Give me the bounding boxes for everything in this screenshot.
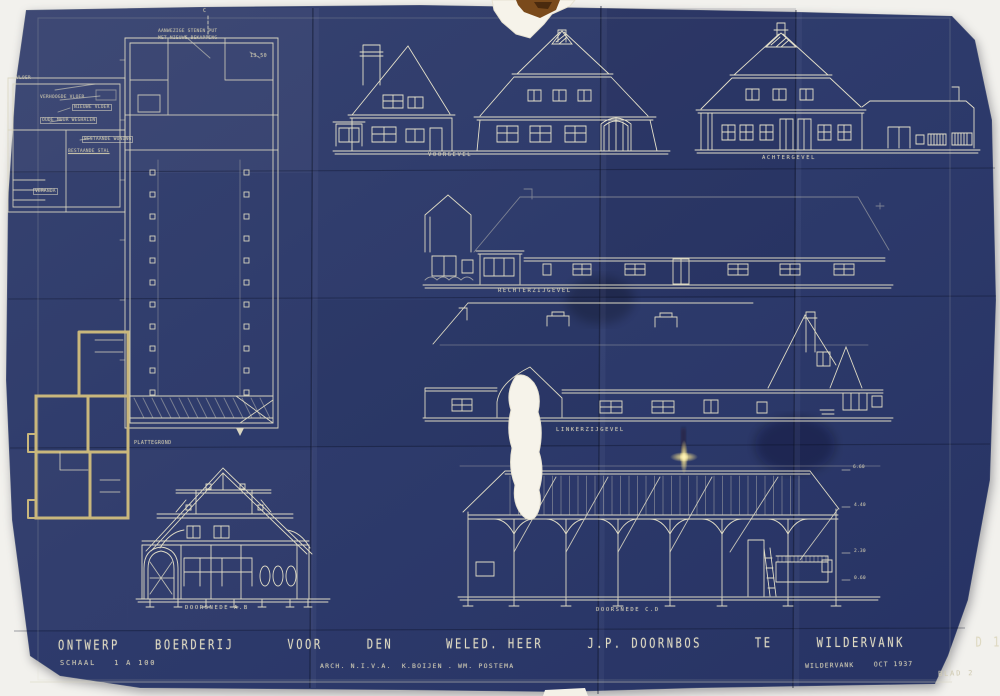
- section-marker-c: C: [203, 8, 206, 14]
- blueprint-sheet: [0, 0, 1000, 696]
- plan-note-dim: 13.50: [250, 53, 267, 59]
- plan-ann-oude-muur: OUDE MUUR WEGHALEN: [40, 117, 97, 124]
- label-achtergevel: ACHTERGEVEL: [762, 155, 816, 161]
- plan-ann-bestaande-woning: BESTAANDE WONING: [82, 136, 133, 143]
- blueprint-photo: AANWEZIGE STENEN PUT MET NIEUWE BEKAPPIN…: [0, 0, 1000, 696]
- label-doorsnede-ab: DOORSNEDE A.B: [185, 605, 249, 611]
- label-linkerzijgevel: LINKERZIJGEVEL: [556, 427, 625, 433]
- label-voorgevel: VOORGEVEL: [428, 152, 472, 158]
- label-plattegrond: PLATTEGROND: [134, 440, 172, 446]
- label-rechterzijgevel: RECHTERZIJGEVEL: [498, 288, 572, 294]
- label-doorsnede-cd: DOORSNEDE C.D: [596, 607, 660, 613]
- plan-note-line2: MET NIEUWE BEKAPPING: [158, 36, 217, 41]
- cd-dim-230: 2.30: [854, 549, 866, 554]
- title-line: ONTWERP BOERDERIJ VOOR DEN WELED. HEER J…: [58, 635, 1000, 654]
- plan-ann-nieuwe-vloer: NIEUWE VLOER: [72, 104, 112, 111]
- title-schaal: SCHAAL 1 A 100: [60, 659, 156, 667]
- plan-note-line1: AANWEZIGE STENEN PUT: [158, 29, 217, 34]
- plan-ann-verhoogde-vloer: VERHOOGDE VLOER: [40, 95, 85, 100]
- paper: [6, 5, 996, 694]
- cd-dim-440: 4.40: [854, 503, 866, 508]
- plan-ann-vloer: VLOER: [16, 76, 31, 81]
- fold-shade: [313, 300, 600, 447]
- plan-ann-veranda: VERANDA: [33, 188, 58, 195]
- title-architect: ARCH. N.I.V.A. K.BOIJEN . WM. POSTEMA: [320, 662, 514, 670]
- title-sheet-number: BLAD 2: [938, 669, 974, 678]
- plan-ann-bestaande-stal: BESTAANDE STAL: [68, 149, 110, 154]
- cd-dim-660: 6.60: [853, 465, 865, 470]
- cd-dim-060: 0.60: [854, 576, 866, 581]
